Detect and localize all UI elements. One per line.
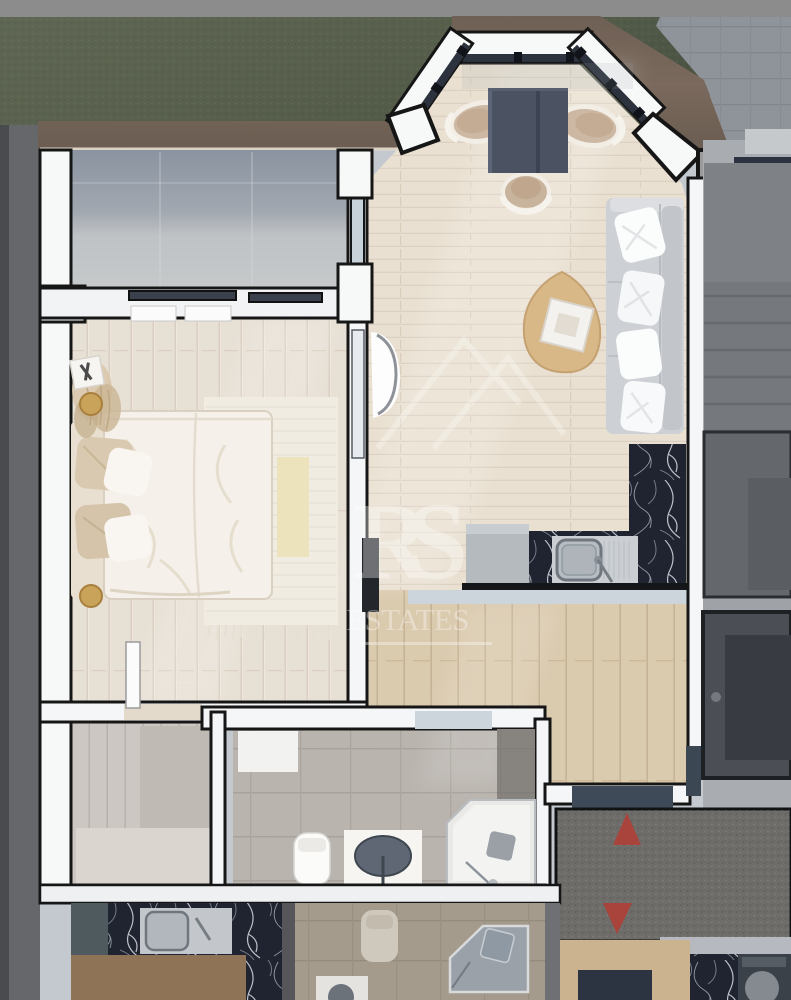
svg-text:ESTATES: ESTATES (346, 602, 473, 637)
svg-text:RS: RS (352, 480, 468, 602)
